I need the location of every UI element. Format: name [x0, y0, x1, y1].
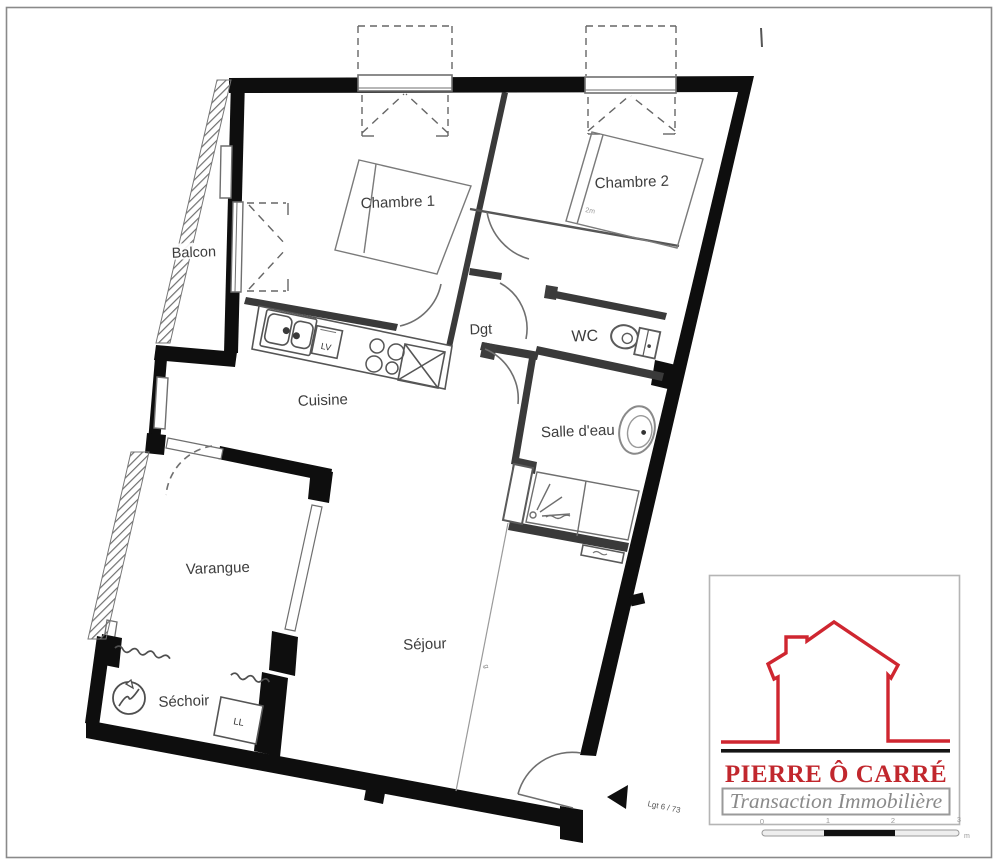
svg-text:LL: LL	[232, 716, 244, 729]
svg-text:2: 2	[891, 816, 895, 825]
svg-text:Varangue: Varangue	[186, 559, 251, 578]
svg-text:Séjour: Séjour	[403, 635, 447, 654]
svg-text:Dgt: Dgt	[469, 322, 492, 339]
svg-text:Séchoir: Séchoir	[158, 692, 209, 711]
svg-text:PIERRE Ô CARRÉ: PIERRE Ô CARRÉ	[725, 759, 947, 788]
svg-text:Balcon: Balcon	[171, 244, 216, 262]
svg-text:1: 1	[826, 816, 830, 825]
svg-text:WC: WC	[571, 328, 598, 346]
svg-text:LV: LV	[320, 341, 332, 353]
svg-text:3: 3	[957, 815, 961, 824]
svg-text:Chambre 2: Chambre 2	[594, 173, 669, 193]
svg-text:Transaction Immobilière: Transaction Immobilière	[730, 789, 943, 813]
svg-text:0: 0	[760, 817, 764, 826]
svg-text:Salle d'eau: Salle d'eau	[541, 422, 615, 442]
svg-text:m: m	[964, 833, 970, 840]
svg-text:Chambre 1: Chambre 1	[360, 193, 435, 213]
svg-text:Cuisine: Cuisine	[298, 391, 349, 410]
